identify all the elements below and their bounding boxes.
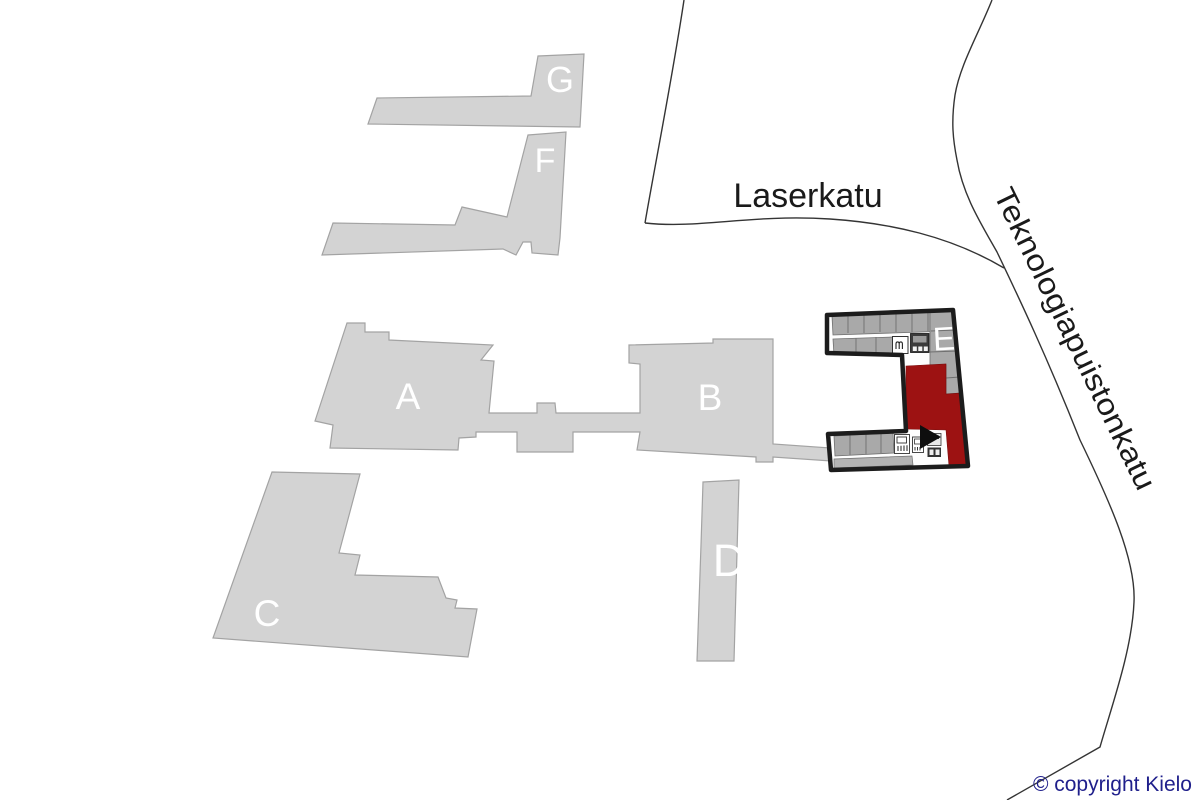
laserkatu-label: Laserkatu <box>733 177 882 215</box>
copyright-text: © copyright Kielo <box>1033 773 1192 796</box>
building-a-label: A <box>396 376 421 417</box>
street-line-laserkatu <box>645 218 1004 268</box>
campus-map: G F A B C D <box>0 0 1200 800</box>
building-b-label: B <box>698 377 723 418</box>
buildings: G F A B C D <box>213 54 831 661</box>
street-line-west <box>645 0 684 223</box>
campus-map-page: G F A B C D <box>0 0 1200 800</box>
building-a-b-shape <box>315 323 831 462</box>
building-f-shape <box>322 132 566 255</box>
teknologiapuistonkatu-label: Teknologiapuistonkatu <box>987 183 1162 496</box>
building-d-label: D <box>713 535 746 586</box>
stairs-icon-bottom <box>895 435 910 454</box>
building-e-floorplan: E <box>827 310 968 470</box>
e-bottom-wing-rooms <box>834 433 894 456</box>
stairs-icon <box>911 334 930 353</box>
building-g-label: G <box>546 59 574 100</box>
elevator-icon <box>893 337 909 354</box>
building-c-shape <box>213 472 477 657</box>
building-c-label: C <box>254 593 281 634</box>
building-f-label: F <box>535 142 556 180</box>
